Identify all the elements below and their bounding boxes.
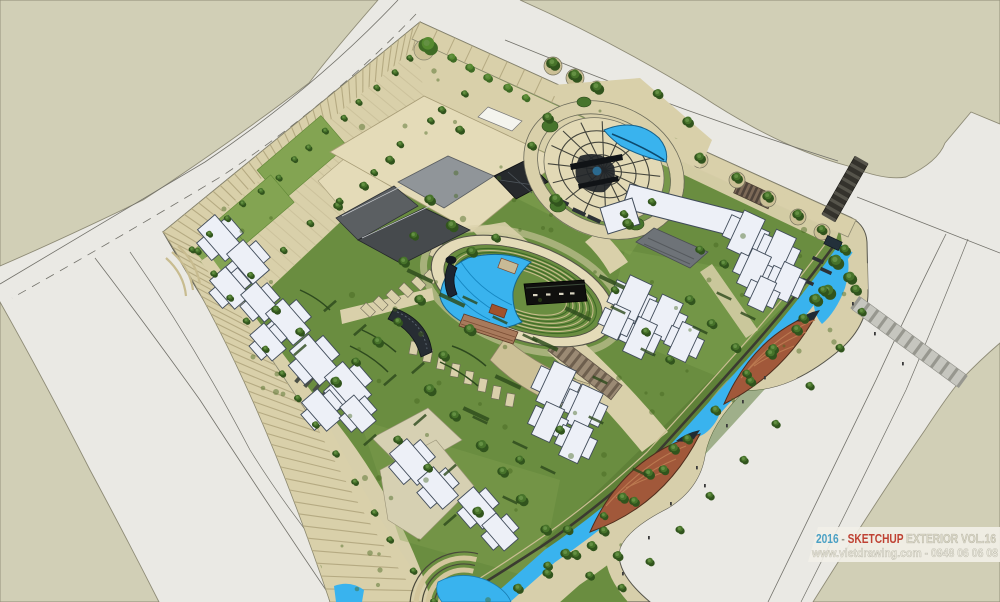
svg-text:2016 - SKETCHUP EXTERIOR VOL.1: 2016 - SKETCHUP EXTERIOR VOL.16 [816, 531, 996, 546]
svg-text:www.vietdrawing.com - 0948 06: www.vietdrawing.com - 0948 06 06 08 [811, 546, 998, 560]
